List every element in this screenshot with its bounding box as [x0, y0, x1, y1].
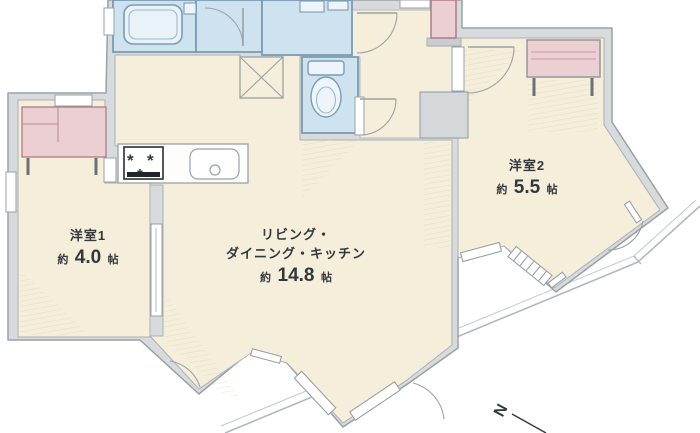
- kitchen-sink-icon: [190, 149, 239, 179]
- door-opening: [452, 47, 464, 91]
- bedroom1-label: 洋室1: [70, 228, 106, 243]
- floor-plan: * * *: [0, 0, 700, 433]
- svg-text:N: N: [489, 401, 509, 419]
- bedroom2-label: 洋室2: [509, 158, 545, 173]
- pipe-space: [240, 57, 283, 98]
- living-label-line2: ダイニング・キッチン: [226, 246, 366, 261]
- compass-north: N: [489, 401, 546, 433]
- living-label-line1: リビング・: [261, 227, 331, 242]
- window-icon: [6, 172, 16, 212]
- kitchen-stove-icon: * * *: [124, 147, 163, 183]
- sliding-door-icon: [104, 158, 116, 182]
- door-swing-arc: [413, 383, 444, 419]
- svg-text:*: *: [147, 151, 154, 170]
- floor-plan-canvas: * * *: [0, 0, 700, 433]
- door-opening: [355, 97, 364, 135]
- kitchen-counter: * * *: [118, 144, 248, 183]
- entry-door-opening: [400, 0, 430, 8]
- vanity-icon: [300, 1, 348, 12]
- shoe-cabinet-icon: [427, 0, 461, 46]
- window-icon: [104, 8, 114, 35]
- svg-text:*: *: [127, 151, 134, 170]
- window-icon: [55, 95, 92, 106]
- toilet-icon: [308, 61, 344, 117]
- entrance-floor: [420, 92, 468, 138]
